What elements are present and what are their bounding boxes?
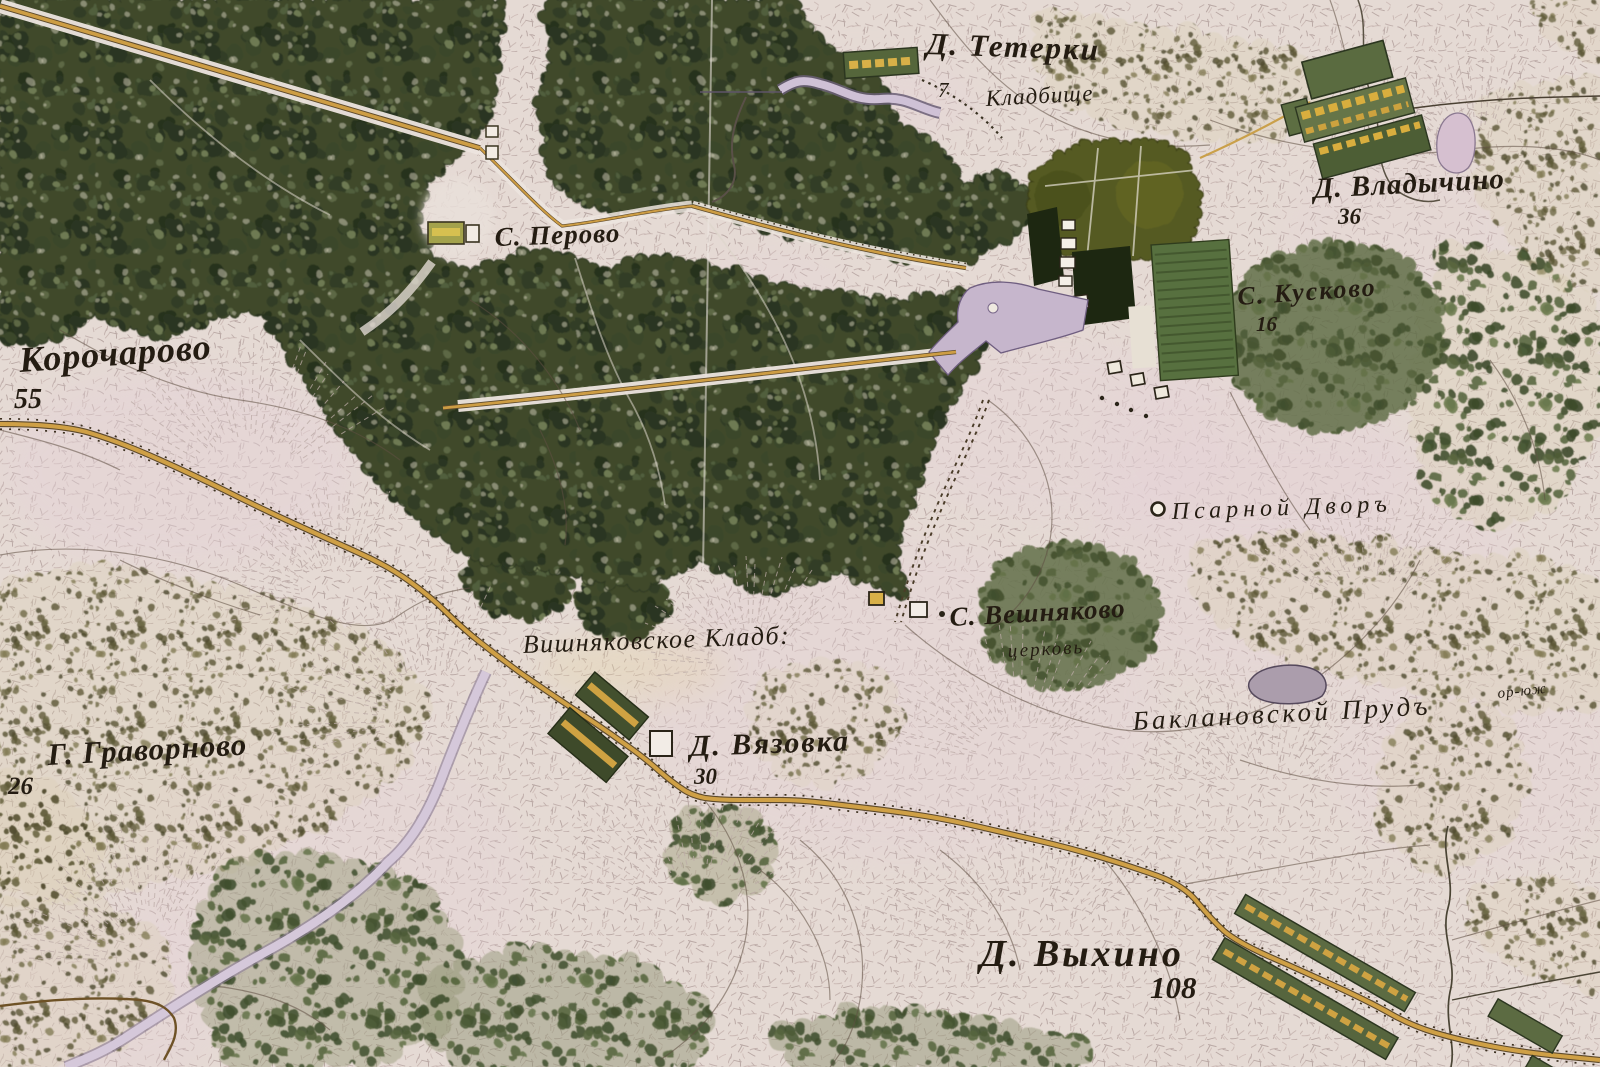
svg-text:церковь: церковь xyxy=(1007,637,1084,662)
svg-text:7: 7 xyxy=(938,78,950,102)
svg-text:30: 30 xyxy=(693,764,718,789)
svg-text:Д. Выхино: Д. Выхино xyxy=(977,933,1184,975)
svg-text:Д. Тетерки: Д. Тетерки xyxy=(923,26,1101,67)
svg-text:С. Перово: С. Перово xyxy=(494,218,621,252)
svg-text:26: 26 xyxy=(7,773,34,800)
svg-text:16: 16 xyxy=(1256,312,1278,336)
svg-text:108: 108 xyxy=(1150,970,1197,1005)
svg-text:Д. Вязовка: Д. Вязовка xyxy=(686,724,851,763)
svg-text:36: 36 xyxy=(1337,204,1362,229)
svg-text:55: 55 xyxy=(14,384,42,415)
